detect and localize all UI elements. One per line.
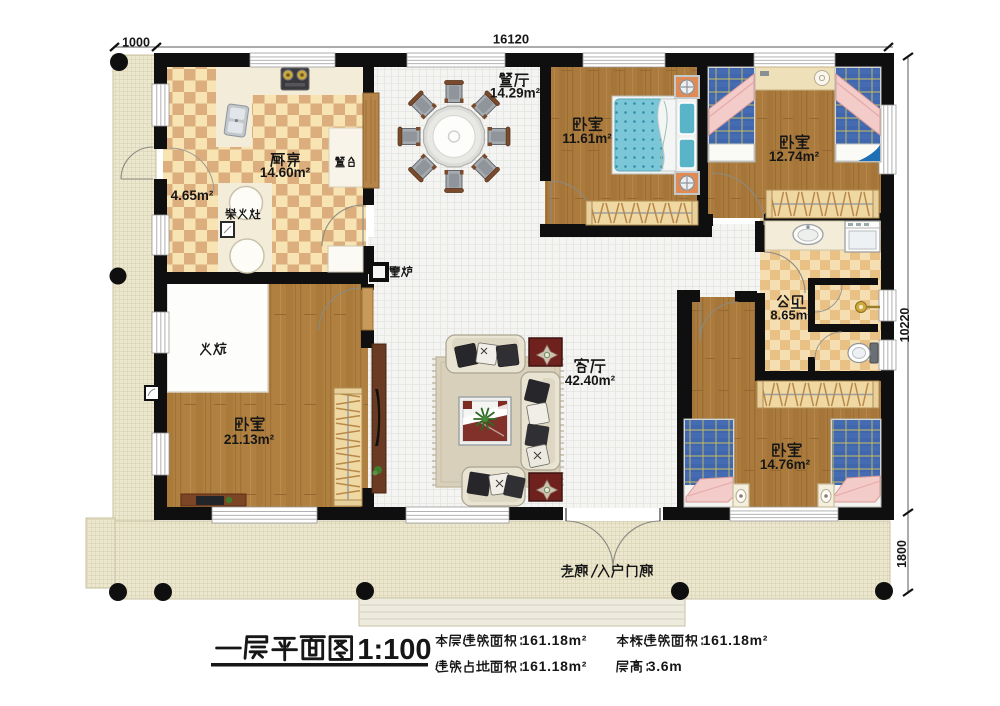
svg-text:1:100: 1:100 <box>357 634 431 666</box>
svg-text:11.61m²: 11.61m² <box>562 131 612 146</box>
svg-text:14.76m²: 14.76m² <box>760 457 811 472</box>
svg-text:161.18m²: 161.18m² <box>522 632 588 648</box>
svg-text:161.18m²: 161.18m² <box>703 632 769 648</box>
svg-text:161.18m²: 161.18m² <box>522 658 588 674</box>
svg-text:21.13m²: 21.13m² <box>224 432 275 447</box>
svg-text:16120: 16120 <box>493 32 529 47</box>
svg-text:1800: 1800 <box>895 540 909 568</box>
svg-text:14.60m²: 14.60m² <box>260 165 311 180</box>
svg-text:12.74m²: 12.74m² <box>769 149 820 164</box>
svg-text:8.65m²: 8.65m² <box>770 308 812 323</box>
svg-text:10220: 10220 <box>898 308 912 343</box>
svg-text:4.65m²: 4.65m² <box>171 188 214 203</box>
svg-text:1000: 1000 <box>122 36 150 50</box>
svg-text:3.6m: 3.6m <box>648 658 683 674</box>
svg-text:14.29m²: 14.29m² <box>490 85 541 100</box>
svg-text:42.40m²: 42.40m² <box>565 373 616 388</box>
